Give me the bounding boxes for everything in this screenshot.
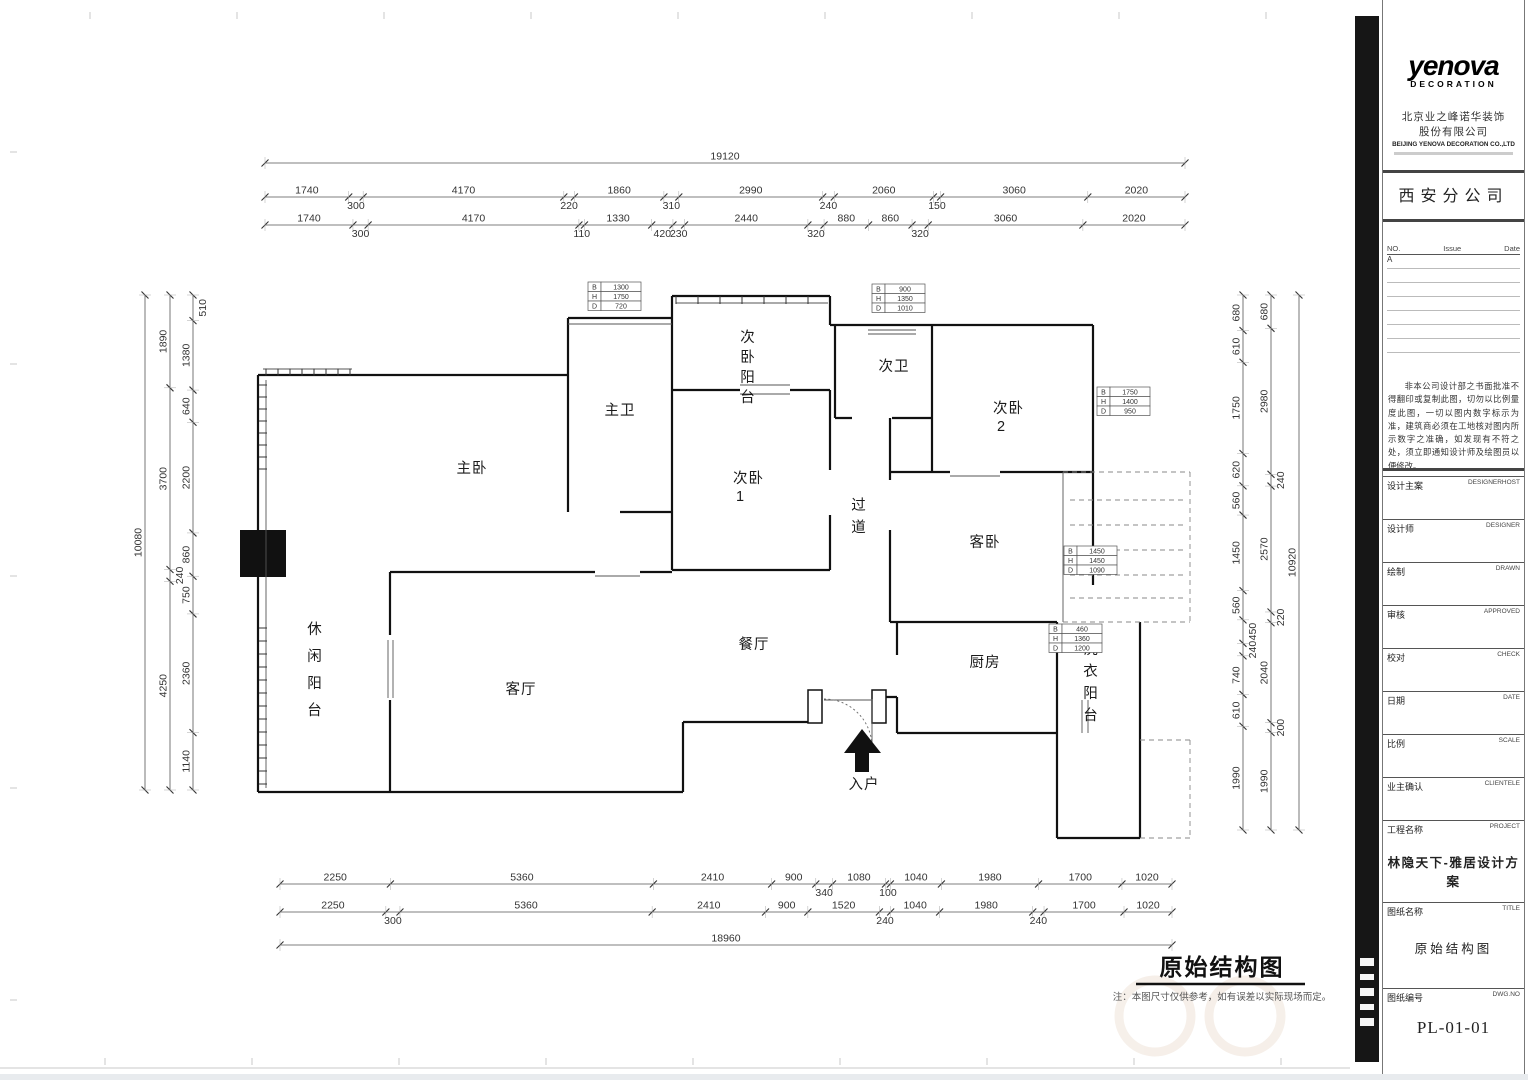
dim-value: 620 [1231,461,1243,479]
field-approved: 审核 APPROVED [1383,605,1524,621]
dim-value: 860 [181,546,193,564]
field-designer: 设计师 DESIGNER [1383,519,1524,535]
field-cn: 设计主案 [1387,479,1423,492]
win-tag-value: 720 [615,303,627,310]
dim-value: 1740 [297,213,321,225]
dim-value: 1040 [903,900,927,912]
field-date: 日期 DATE [1383,691,1524,707]
walls [240,296,1140,838]
field-cn: 比例 [1387,737,1405,750]
dim-value: 1750 [1231,396,1243,420]
field-en: CHECK [1497,651,1520,664]
field-en: DESIGNER [1486,522,1520,535]
win-tag-key: H [1053,636,1058,643]
field-designerhost: 设计主案 DESIGNERHOST [1383,476,1524,492]
dim-value: 2250 [321,900,345,912]
drawing-sheet: 主卧 主卫 次卧阳台 次卧 1 次卫 次卧 2 过道 客卧 餐厅 厨房 洗衣阳台… [0,0,1528,1080]
revision-row [1387,283,1520,297]
field-en: APPROVED [1484,608,1520,621]
dim-value: 4250 [158,674,170,698]
dwg-label-row: 图纸编号 DWG.NO [1383,988,1524,1004]
dim-bottom-overall: 18960 [277,933,1176,952]
drawing-name: 原始结构图 [1383,938,1524,957]
plan-note: 注：本图尺寸仅供参考，如有误差以实际现场而定。 [1113,991,1332,1003]
dim-value: 560 [1231,492,1243,510]
dim-right-overall: 10920 [1287,292,1306,834]
dim-value: 150 [928,200,946,212]
room-label-guest-bedroom: 客卧 [970,534,1001,551]
room-label-laundry-balcony: 洗衣阳台 [1083,641,1099,724]
dim-value: 1990 [1231,766,1243,790]
dim-value: 320 [911,228,929,240]
dim-value: 230 [670,228,688,240]
dim-value: 1020 [1136,900,1160,912]
room-label-corridor: 过道 [851,497,867,536]
room-label-bed2-balcony: 次卧阳台 [740,329,756,406]
dim-value: 510 [197,299,209,317]
dim-value: 1330 [606,213,630,225]
dim-value: 420 [654,228,672,240]
drawing-label-en: TITLE [1502,905,1520,918]
drawing-label-cn: 图纸名称 [1387,905,1423,918]
dim-value: 5360 [514,900,538,912]
dim-value: 2410 [697,900,721,912]
dim-value: 1990 [1259,769,1271,793]
revision-row [1387,325,1520,339]
dim-value: 2060 [872,185,896,197]
company-cn-line2: 股份有限公司 [1383,125,1524,140]
entry-jamb-left [808,690,822,723]
win-tag-value: 1360 [1074,636,1090,643]
dwg-label-cn: 图纸编号 [1387,991,1423,1004]
dim-value: 750 [181,586,193,604]
dim-value: 680 [1231,304,1243,322]
win-tag-value: 1300 [613,284,629,291]
disclaimer-text: 非本公司设计部之书面批准不得翻印或复制此图，切勿以比例量度此图，一切以图内数字标… [1383,380,1524,473]
revision-row [1387,339,1520,353]
rev-col-no: NO. [1387,244,1400,253]
win-tag-value: 1400 [1122,399,1138,406]
field-clientele: 业主确认 CLIENTELE [1383,777,1524,793]
dim-value: 310 [663,200,681,212]
win-tag-key: D [1068,567,1073,574]
dim-value: 1140 [181,750,193,773]
revision-table: NO. Issue Date A [1383,244,1524,353]
field-cn: 绘制 [1387,565,1405,578]
project-label-en: PROJECT [1490,823,1520,836]
win-tag-key: H [1101,399,1106,406]
dim-value: 1980 [978,872,1002,884]
win-tag-key: D [876,305,881,312]
dim-left-inner: 5101380640220086075023601140 [181,292,210,794]
win-tag-key: B [1068,548,1073,555]
dim-value: 2360 [181,661,193,685]
dim-bottom-row1: 2250536024109003401080100104019801700102… [277,872,1176,900]
dim-value: 3060 [994,213,1018,225]
field-en: DESIGNERHOST [1468,479,1520,492]
sheet-bottom-edge [0,1074,1528,1080]
window-tag-second-bath: B900H1350D1010 [872,284,925,313]
room-label-bedroom2-num: 2 [997,419,1006,435]
window-tag-master-bath: B1300H1750D720 [588,282,641,311]
dim-value: 3060 [1003,185,1027,197]
dim-value: 5360 [510,872,534,884]
revision-row [1387,269,1520,283]
title-block: yenova DECORATION 北京业之峰诺华装饰 股份有限公司 BEIJI… [1382,0,1525,1080]
win-tag-value: 1750 [613,294,629,301]
dim-value: 300 [347,200,365,212]
dim-value: 18960 [711,933,740,945]
dim-value: 240 [820,200,838,212]
yenova-logo-text: yenova [1383,50,1524,82]
watermark [1119,980,1281,1052]
win-tag-key: B [1101,389,1106,396]
win-tag-value: 1750 [1122,389,1138,396]
room-label-bedroom1-num: 1 [736,489,745,505]
dim-value: 1700 [1069,872,1093,884]
dim-value: 860 [882,213,900,225]
company-name: 北京业之峰诺华装饰 股份有限公司 [1383,110,1524,140]
room-label-kitchen: 厨房 [970,654,1001,671]
field-cn: 设计师 [1387,522,1414,535]
branch-name: 西安分公司 [1383,182,1524,206]
dim-value: 1020 [1135,872,1159,884]
dim-value: 220 [1275,608,1287,626]
dim-value: 10920 [1287,548,1299,577]
field-cn: 校对 [1387,651,1405,664]
room-label-bedroom1: 次卧 [733,470,764,487]
field-en: SCALE [1499,737,1520,750]
room-label-dining: 餐厅 [739,636,770,653]
field-check: 校对 CHECK [1383,648,1524,664]
win-tag-key: D [592,303,597,310]
dim-value: 1890 [158,330,170,354]
win-tag-key: H [876,296,881,303]
win-tag-value: 950 [1124,408,1136,415]
win-tag-key: B [592,284,597,291]
divider [1383,219,1524,222]
dim-value: 4170 [462,213,486,225]
dim-value: 240 [1030,915,1048,927]
dim-value: 880 [838,213,856,225]
dim-right-inner: 680610175062056014505604502407406101990 [1231,292,1260,834]
dim-value: 1080 [847,872,871,884]
dim-value: 100 [879,887,897,899]
company-cn-line1: 北京业之峰诺华装饰 [1383,110,1524,125]
plan-title: 原始结构图 [1160,954,1285,980]
room-label-master-bedroom: 主卧 [457,460,488,477]
dim-value: 1040 [904,872,928,884]
win-tag-value: 1010 [897,305,913,312]
dim-top-row2: 1740300417011013304202302440320880860320… [262,213,1189,241]
field-cn: 业主确认 [1387,780,1423,793]
dim-top-overall: 19120 [262,151,1189,170]
field-en: DATE [1503,694,1520,707]
divider [1383,468,1524,471]
field-scale: 比例 SCALE [1383,734,1524,750]
dim-value: 1450 [1231,541,1243,565]
company-address-line [1394,152,1512,155]
drawing-label-row: 图纸名称 TITLE [1383,902,1524,918]
rev-col-issue: Issue [1443,244,1461,253]
dim-value: 560 [1231,596,1243,614]
window-tag-guest-bedroom: B1450H1450D1090 [1064,546,1117,575]
room-label-leisure-balcony: 休闲阳台 [307,621,323,719]
dim-value: 2990 [739,185,763,197]
dim-value: 740 [1231,666,1243,684]
dim-value: 1520 [832,900,856,912]
entry-arrow-icon [844,729,881,772]
dim-value: 300 [384,915,402,927]
win-tag-key: H [592,294,597,301]
room-label-living: 客厅 [506,681,537,698]
dim-value: 110 [573,228,590,240]
dim-value: 610 [1231,337,1243,355]
field-drawn: 绘制 DRAWN [1383,562,1524,578]
dim-value: 220 [560,200,578,212]
win-tag-value: 1350 [897,296,913,303]
dim-value: 2200 [181,466,193,490]
win-tag-key: B [1053,626,1058,633]
dim-value: 450 [1247,623,1259,641]
win-tag-key: D [1101,408,1106,415]
field-cn: 审核 [1387,608,1405,621]
dim-value: 1980 [974,900,998,912]
dim-value: 4170 [452,185,476,197]
binding-strip [1355,16,1379,1062]
dim-value: 340 [815,887,833,899]
dim-value: 900 [785,872,803,884]
dim-value: 1740 [295,185,319,197]
dim-value: 2020 [1125,185,1149,197]
window-tag-bedroom2: B1750H1400D950 [1097,387,1150,416]
dim-value: 2980 [1259,389,1271,413]
win-tag-value: 1090 [1089,567,1105,574]
win-tag-value: 900 [899,286,911,293]
dim-value: 2570 [1259,537,1271,561]
window-tag-kitchen: B460H1360D1200 [1049,624,1102,653]
dim-value: 900 [778,900,796,912]
dim-bottom-row2: 2250300536024109001520240104019802401700… [277,900,1176,928]
dim-value: 640 [181,397,193,415]
project-label-cn: 工程名称 [1387,823,1423,836]
dim-value: 200 [1275,719,1287,737]
divider [1383,170,1524,173]
rev-col-date: Date [1504,244,1520,253]
dim-value: 2440 [735,213,759,225]
room-label-master-bath: 主卫 [605,402,636,419]
revision-row [1387,311,1520,325]
floor-plan-canvas: 主卧 主卫 次卧阳台 次卧 1 次卫 次卧 2 过道 客卧 餐厅 厨房 洗衣阳台… [0,0,1355,1080]
company-name-en: BEIJING YENOVA DECORATION CO.,LTD [1383,141,1524,148]
structural-column [240,530,286,577]
dim-value: 3700 [158,467,170,491]
dashed-platform [1063,472,1190,838]
win-tag-value: 460 [1076,626,1088,633]
dim-value: 1860 [607,185,631,197]
revision-row [1387,297,1520,311]
revision-row: A [1387,255,1520,269]
win-tag-value: 1200 [1074,645,1090,652]
yenova-logo-sub: DECORATION [1383,79,1524,89]
dim-value: 2250 [324,872,348,884]
dim-value: 1380 [181,344,193,368]
dim-value: 10080 [133,528,145,557]
logo: yenova DECORATION [1383,50,1524,89]
entry-label: 入户 [849,776,880,793]
dim-value: 240 [876,915,894,927]
field-cn: 日期 [1387,694,1405,707]
dim-left-overall: 10080 [133,292,152,794]
dim-value: 320 [807,228,825,240]
field-en: DRAWN [1496,565,1520,578]
win-tag-value: 1450 [1089,558,1105,565]
dim-top-row1: 1740300417022018603102990240206015030602… [262,185,1189,213]
dim-right-mid: 6802980240257022020402001990 [1259,292,1288,834]
dim-value: 1700 [1072,900,1096,912]
dim-value: 300 [352,228,370,240]
project-name: 林隐天下-雅居设计方案 [1383,852,1524,890]
dim-value: 2020 [1122,213,1146,225]
dim-value: 19120 [710,151,739,163]
entry-jamb-right [872,690,886,723]
dim-value: 2040 [1259,661,1271,685]
win-tag-key: H [1068,558,1073,565]
win-tag-key: D [1053,645,1058,652]
room-label-second-bath: 次卫 [879,358,910,375]
field-en: CLIENTELE [1485,780,1520,793]
project-label-row: 工程名称 PROJECT [1383,820,1524,836]
dim-value: 2410 [701,872,725,884]
dim-value: 680 [1259,303,1271,321]
dwg-label-en: DWG.NO [1493,991,1520,1004]
room-label-bedroom2: 次卧 [993,400,1024,417]
win-tag-key: B [876,286,881,293]
drawing-number: PL-01-01 [1383,1018,1524,1038]
win-tag-value: 1450 [1089,548,1105,555]
dim-value: 610 [1231,701,1243,719]
